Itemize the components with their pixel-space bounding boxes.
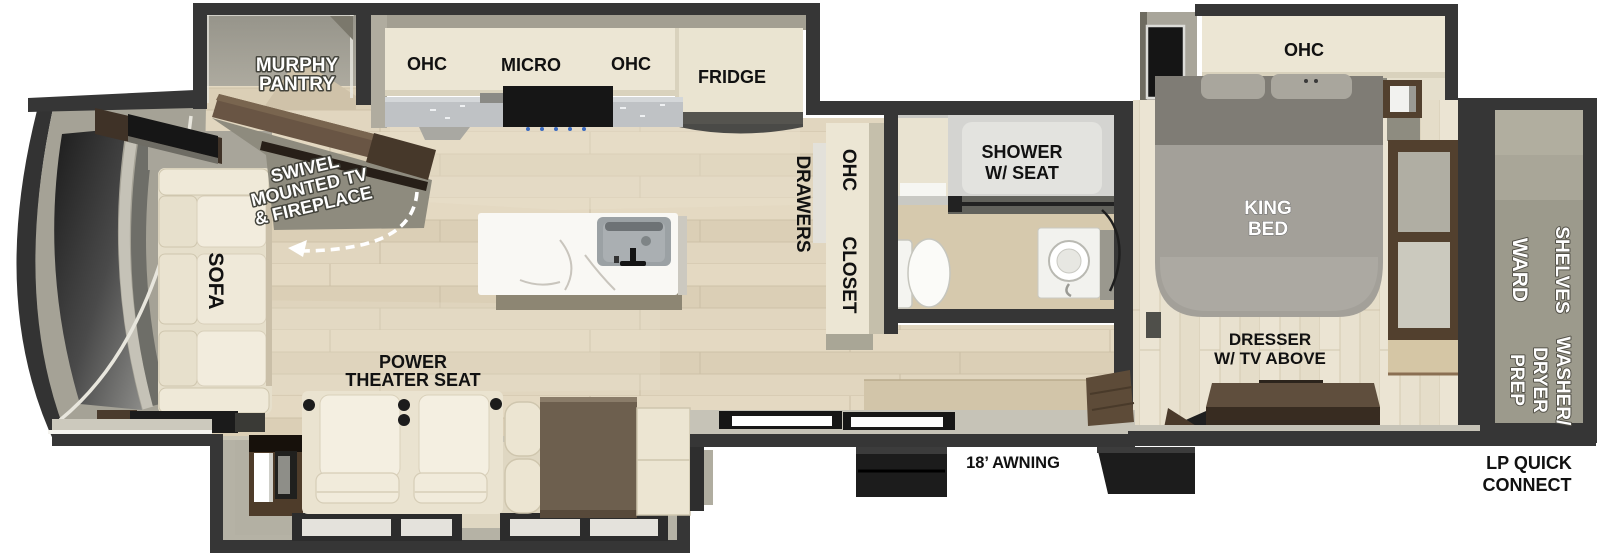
svg-text:DRYER: DRYER: [1529, 347, 1550, 413]
svg-text:OHC: OHC: [1284, 40, 1324, 60]
svg-text:OHC: OHC: [407, 54, 447, 74]
svg-text:KING: KING: [1244, 198, 1292, 219]
svg-text:MURPHY: MURPHY: [256, 55, 339, 76]
svg-text:CONNECT: CONNECT: [1483, 475, 1572, 495]
svg-text:PANTRY: PANTRY: [259, 74, 335, 95]
svg-text:OHC: OHC: [611, 54, 651, 74]
svg-text:THEATER SEAT: THEATER SEAT: [345, 370, 480, 390]
svg-text:LP QUICK: LP QUICK: [1486, 453, 1572, 473]
svg-text:FRIDGE: FRIDGE: [698, 67, 766, 87]
svg-text:WASHER/: WASHER/: [1552, 337, 1573, 426]
svg-text:PREP: PREP: [1506, 354, 1527, 406]
svg-text:POWER: POWER: [379, 352, 447, 372]
svg-text:W/ SEAT: W/ SEAT: [985, 163, 1059, 183]
svg-text:SHELVES: SHELVES: [1551, 226, 1572, 313]
svg-text:W/ TV ABOVE: W/ TV ABOVE: [1214, 349, 1326, 368]
svg-text:SHOWER: SHOWER: [982, 142, 1063, 162]
svg-text:DRAWERS: DRAWERS: [792, 155, 813, 252]
svg-text:MICRO: MICRO: [501, 55, 561, 75]
svg-text:18’ AWNING: 18’ AWNING: [966, 454, 1060, 472]
svg-text:CLOSET: CLOSET: [838, 236, 859, 313]
svg-text:SOFA: SOFA: [204, 252, 227, 309]
svg-text:DRESSER: DRESSER: [1229, 330, 1311, 349]
svg-text:WARD: WARD: [1508, 238, 1531, 302]
svg-text:OHC: OHC: [838, 149, 859, 192]
svg-text:BED: BED: [1248, 219, 1288, 240]
